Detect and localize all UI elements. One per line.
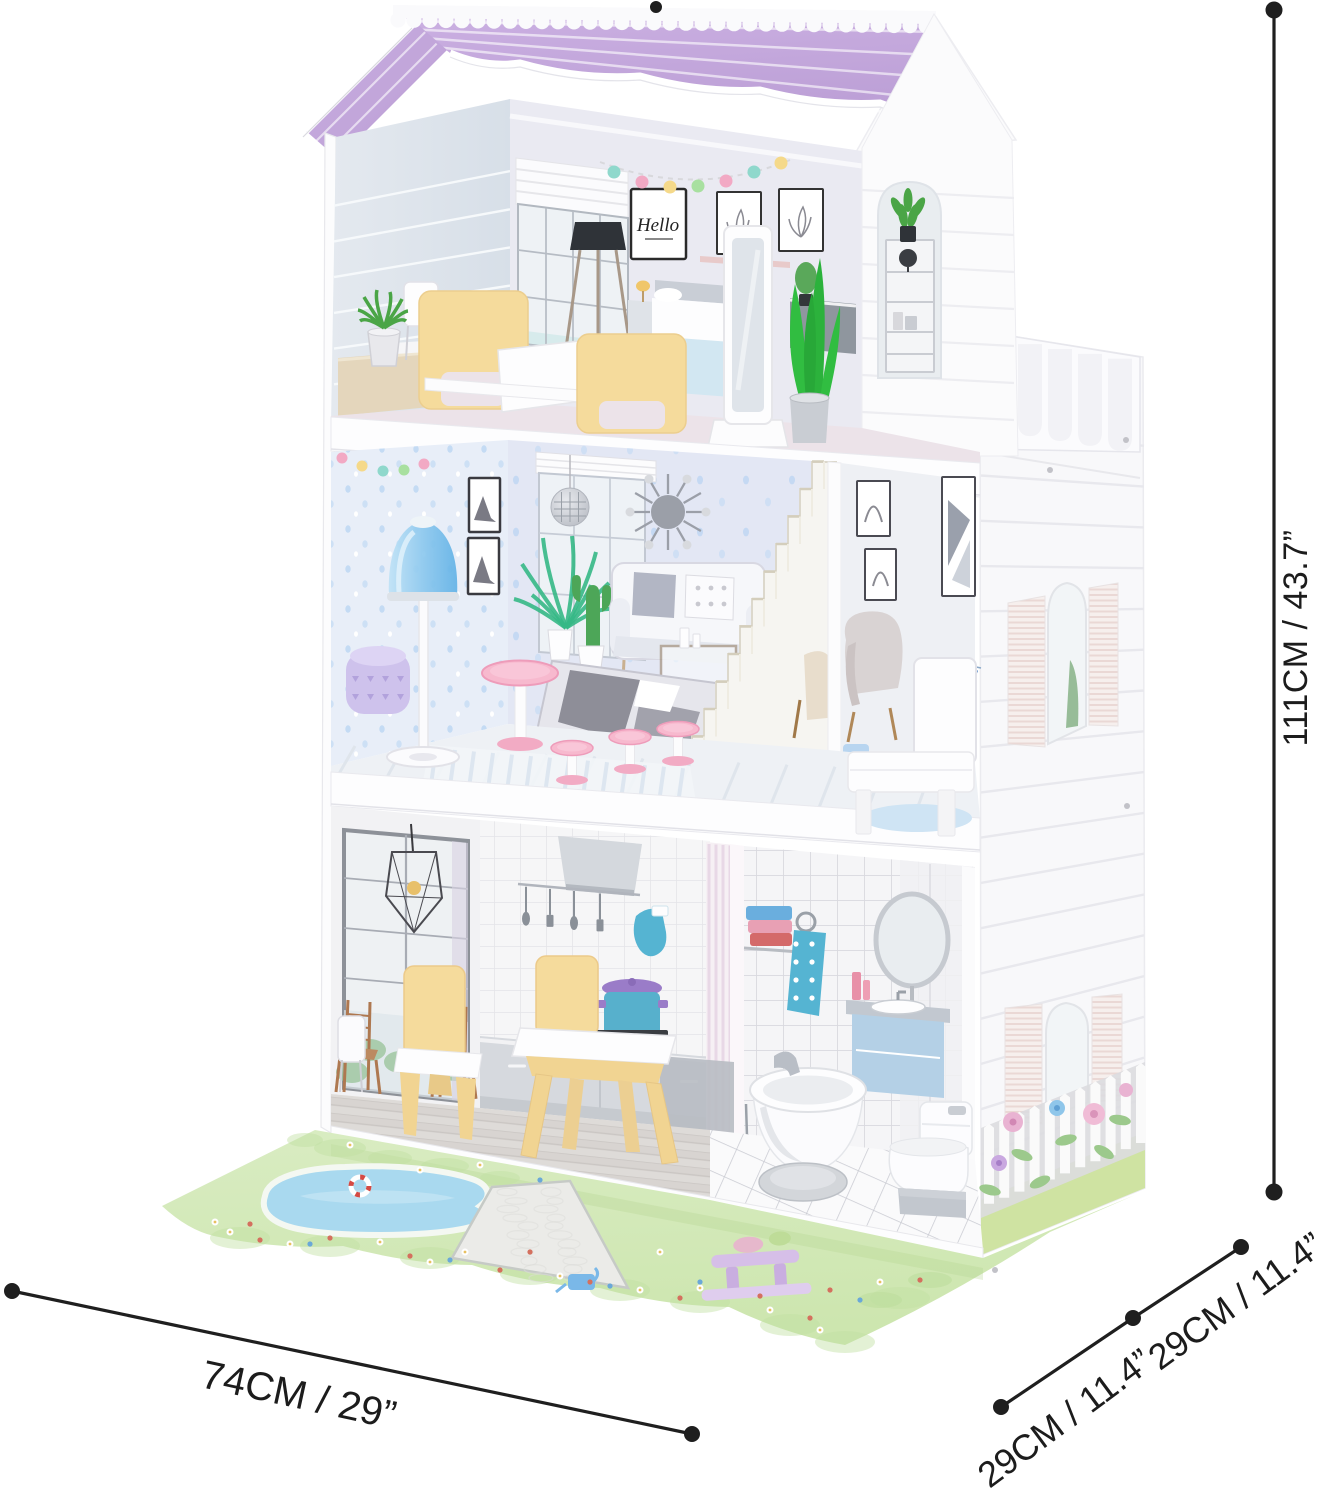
svg-text:111CM / 43.7”: 111CM / 43.7” xyxy=(1277,530,1315,747)
svg-text:Hello: Hello xyxy=(636,215,679,236)
